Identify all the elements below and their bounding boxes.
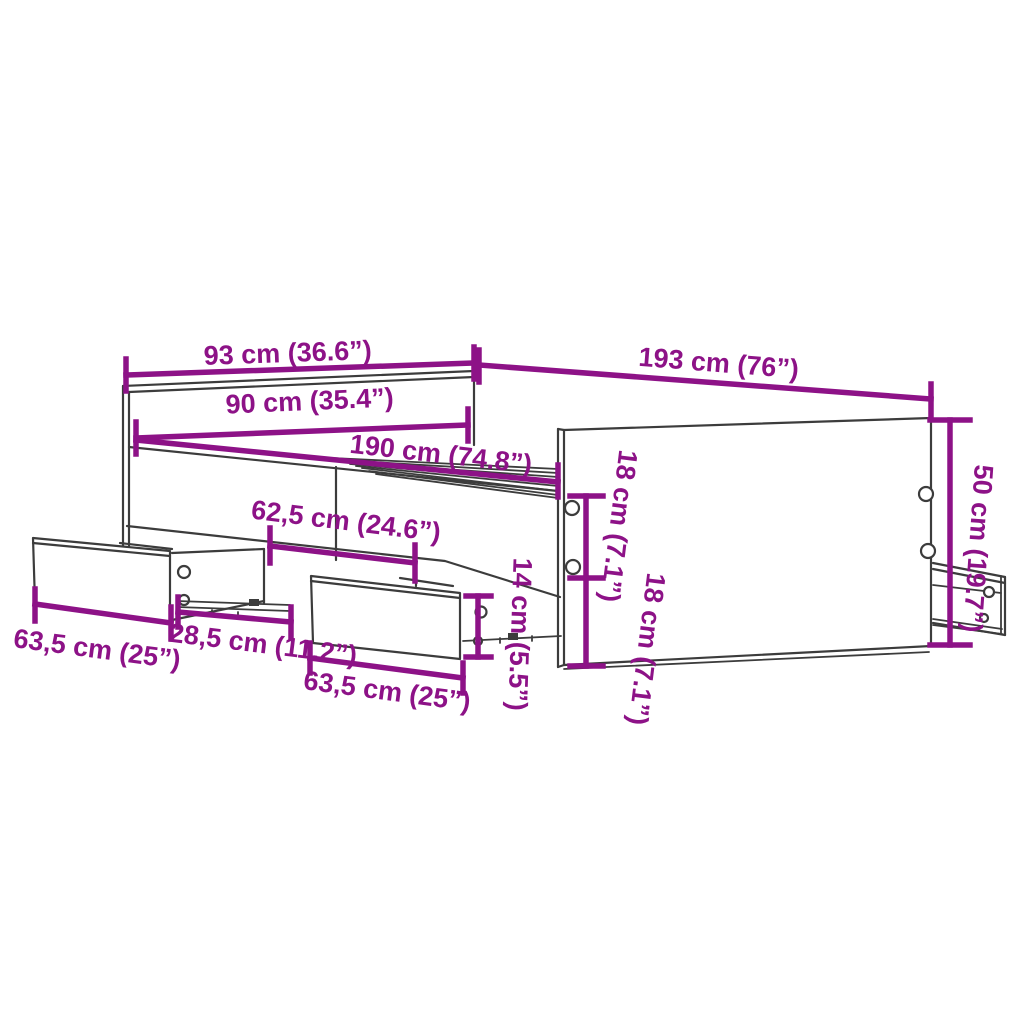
dim-side-panel-height: 50 cm (19.7”)	[930, 420, 999, 645]
dim-label-headboard-width: 93 cm (36.6”)	[203, 335, 372, 371]
panel-screw-hole	[565, 501, 579, 515]
dim-label-left-drawer-width: 63,5 cm (25”)	[12, 623, 183, 675]
dim-label-inner-width: 90 cm (35.4”)	[225, 382, 394, 419]
dim-label-middle-opening: 62,5 cm (24.6”)	[250, 495, 443, 548]
panel-screw-hole	[919, 487, 933, 501]
dim-middle-opening: 62,5 cm (24.6”)	[250, 495, 443, 581]
bed-frame-dimension-diagram: 93 cm (36.6”) 193 cm (76”) 90 cm (35.4”)…	[0, 0, 1024, 1024]
panel-screw-hole	[921, 544, 935, 558]
diagram-canvas: 93 cm (36.6”) 193 cm (76”) 90 cm (35.4”)…	[0, 0, 1024, 1024]
dim-frame-length: 193 cm (76”)	[479, 342, 931, 416]
dim-label-side-panel-height: 50 cm (19.7”)	[957, 464, 999, 634]
panel-screw-hole	[566, 560, 580, 574]
drawer-screw-hole	[178, 566, 190, 578]
drawer-slide-stop	[249, 599, 259, 606]
dim-label-middle-drawer-width: 63,5 cm (25”)	[302, 665, 473, 717]
dim-label-drawer-front-height: 14 cm (5.5”)	[502, 557, 537, 711]
dim-drawer-front-height: 14 cm (5.5”)	[466, 557, 538, 711]
